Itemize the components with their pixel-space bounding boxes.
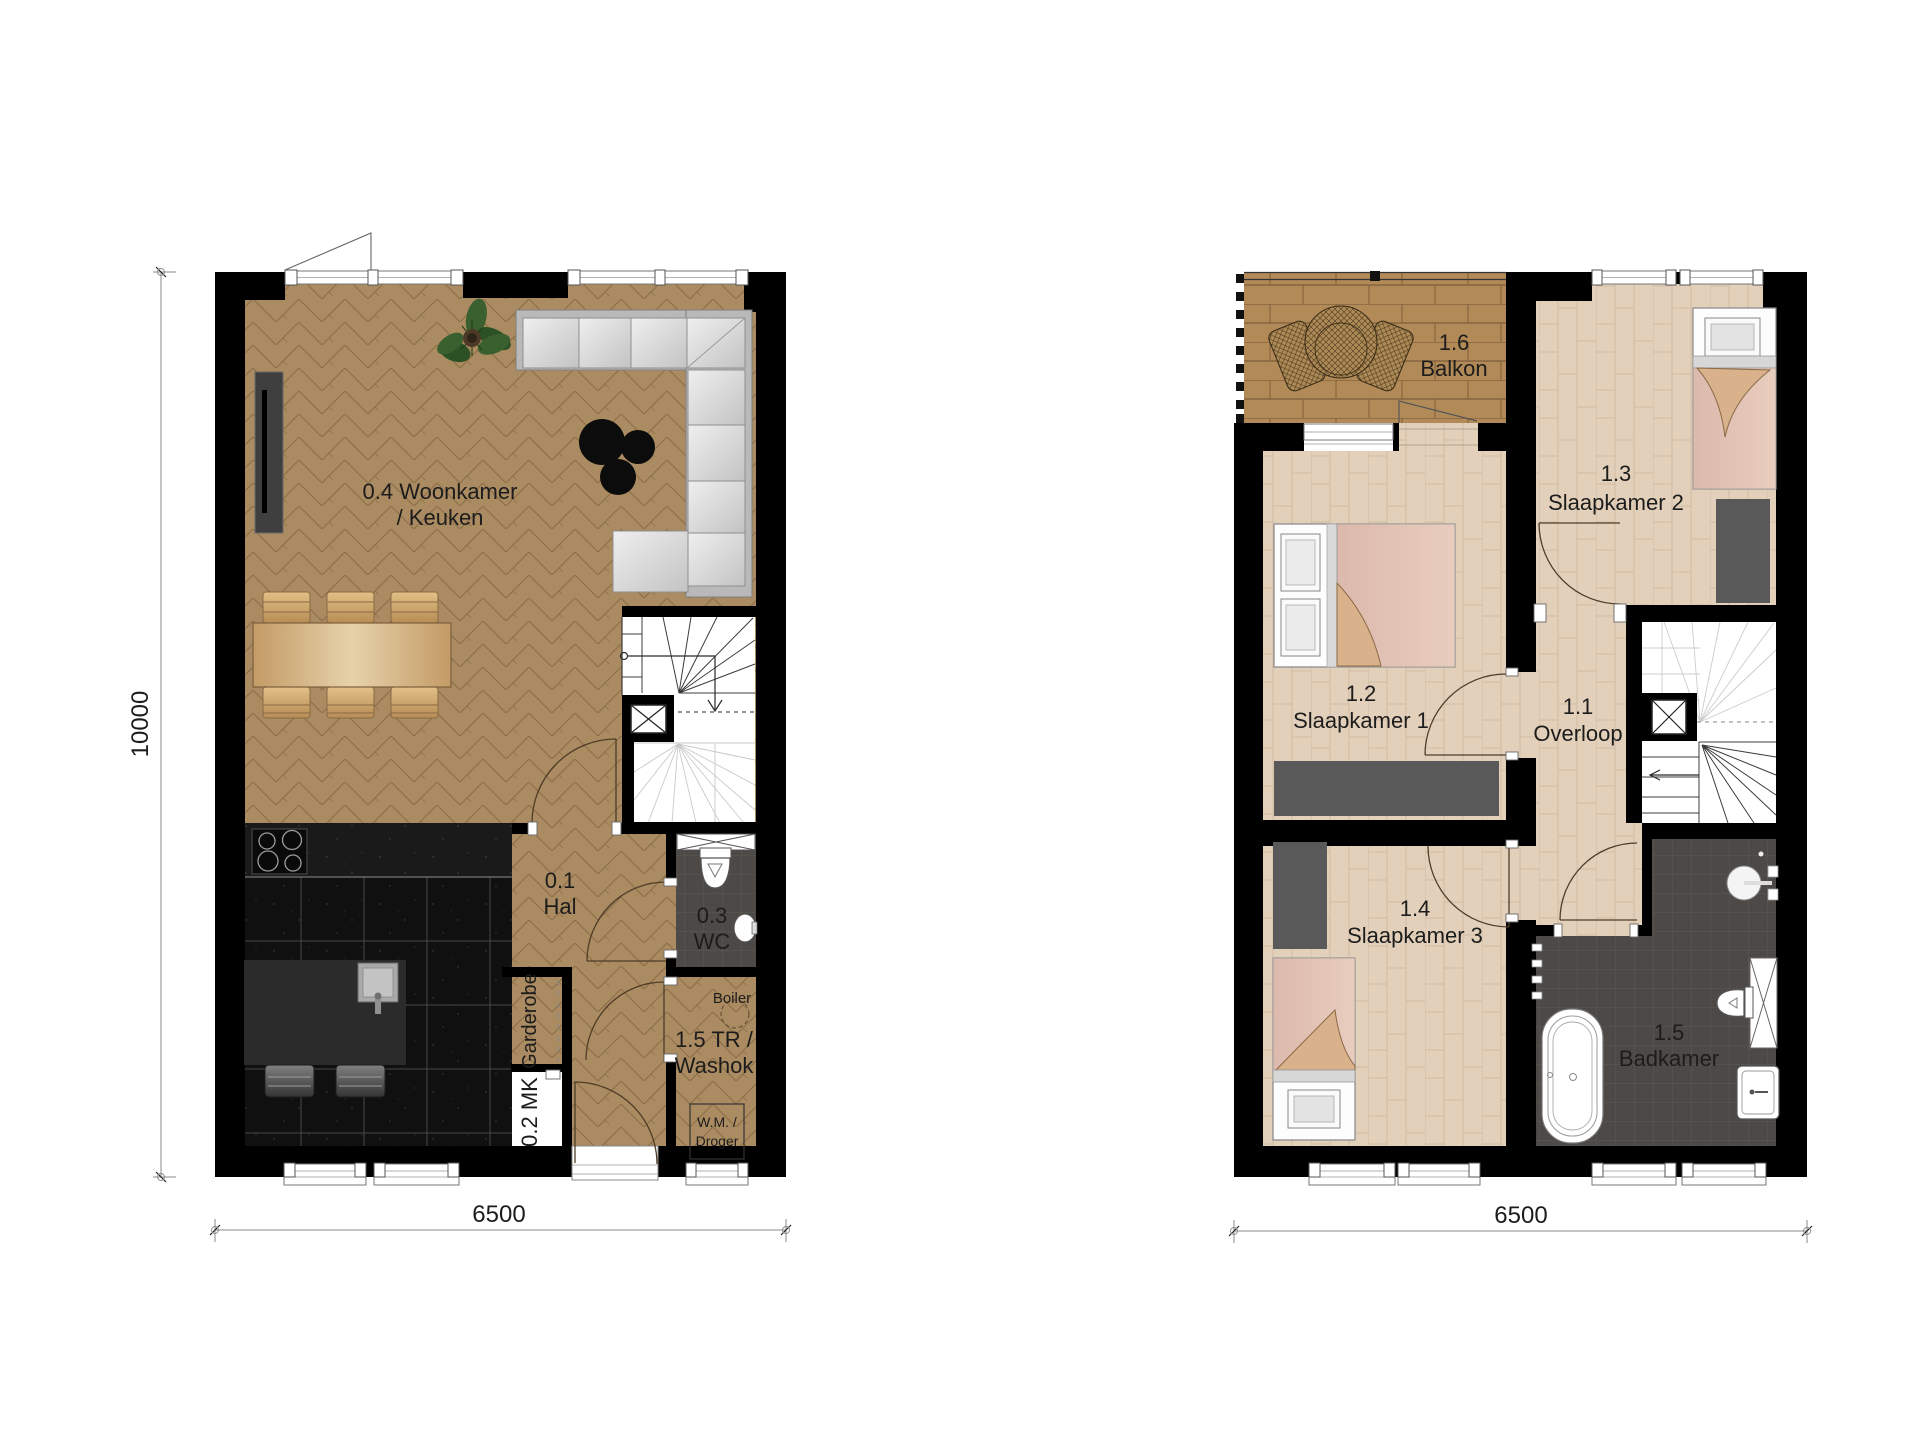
svg-text:Hal: Hal (543, 894, 576, 919)
svg-text:W.M. /: W.M. / (697, 1114, 737, 1130)
svg-text:Balkon: Balkon (1420, 356, 1487, 381)
svg-text:0.4 Woonkamer: 0.4 Woonkamer (363, 479, 518, 504)
svg-text:Slaapkamer 3: Slaapkamer 3 (1347, 923, 1483, 948)
svg-text:Garderobe: Garderobe (519, 973, 541, 1069)
svg-text:1.1: 1.1 (1563, 694, 1594, 719)
svg-text:1.4: 1.4 (1400, 896, 1431, 921)
svg-text:Overloop: Overloop (1533, 721, 1622, 746)
svg-text:0.1: 0.1 (545, 868, 576, 893)
svg-text:/ Keuken: / Keuken (397, 505, 484, 530)
svg-text:1.3: 1.3 (1601, 461, 1632, 486)
svg-text:Badkamer: Badkamer (1619, 1046, 1719, 1071)
svg-text:1.6: 1.6 (1439, 330, 1470, 355)
svg-text:6500: 6500 (472, 1201, 525, 1228)
svg-text:WC: WC (694, 929, 731, 954)
svg-text:6500: 6500 (1494, 1202, 1547, 1229)
svg-text:0.2 MK: 0.2 MK (517, 1077, 542, 1147)
svg-text:1.2: 1.2 (1346, 681, 1377, 706)
svg-text:Boiler: Boiler (713, 990, 751, 1007)
svg-text:1.5 TR /: 1.5 TR / (675, 1027, 754, 1052)
svg-text:Slaapkamer 1: Slaapkamer 1 (1293, 708, 1429, 733)
svg-text:10000: 10000 (127, 691, 154, 758)
svg-text:Washok: Washok (675, 1053, 755, 1078)
svg-text:0.3: 0.3 (697, 903, 728, 928)
svg-text:Droger: Droger (696, 1133, 739, 1149)
svg-text:1.5: 1.5 (1654, 1020, 1685, 1045)
svg-text:Slaapkamer 2: Slaapkamer 2 (1548, 490, 1684, 515)
